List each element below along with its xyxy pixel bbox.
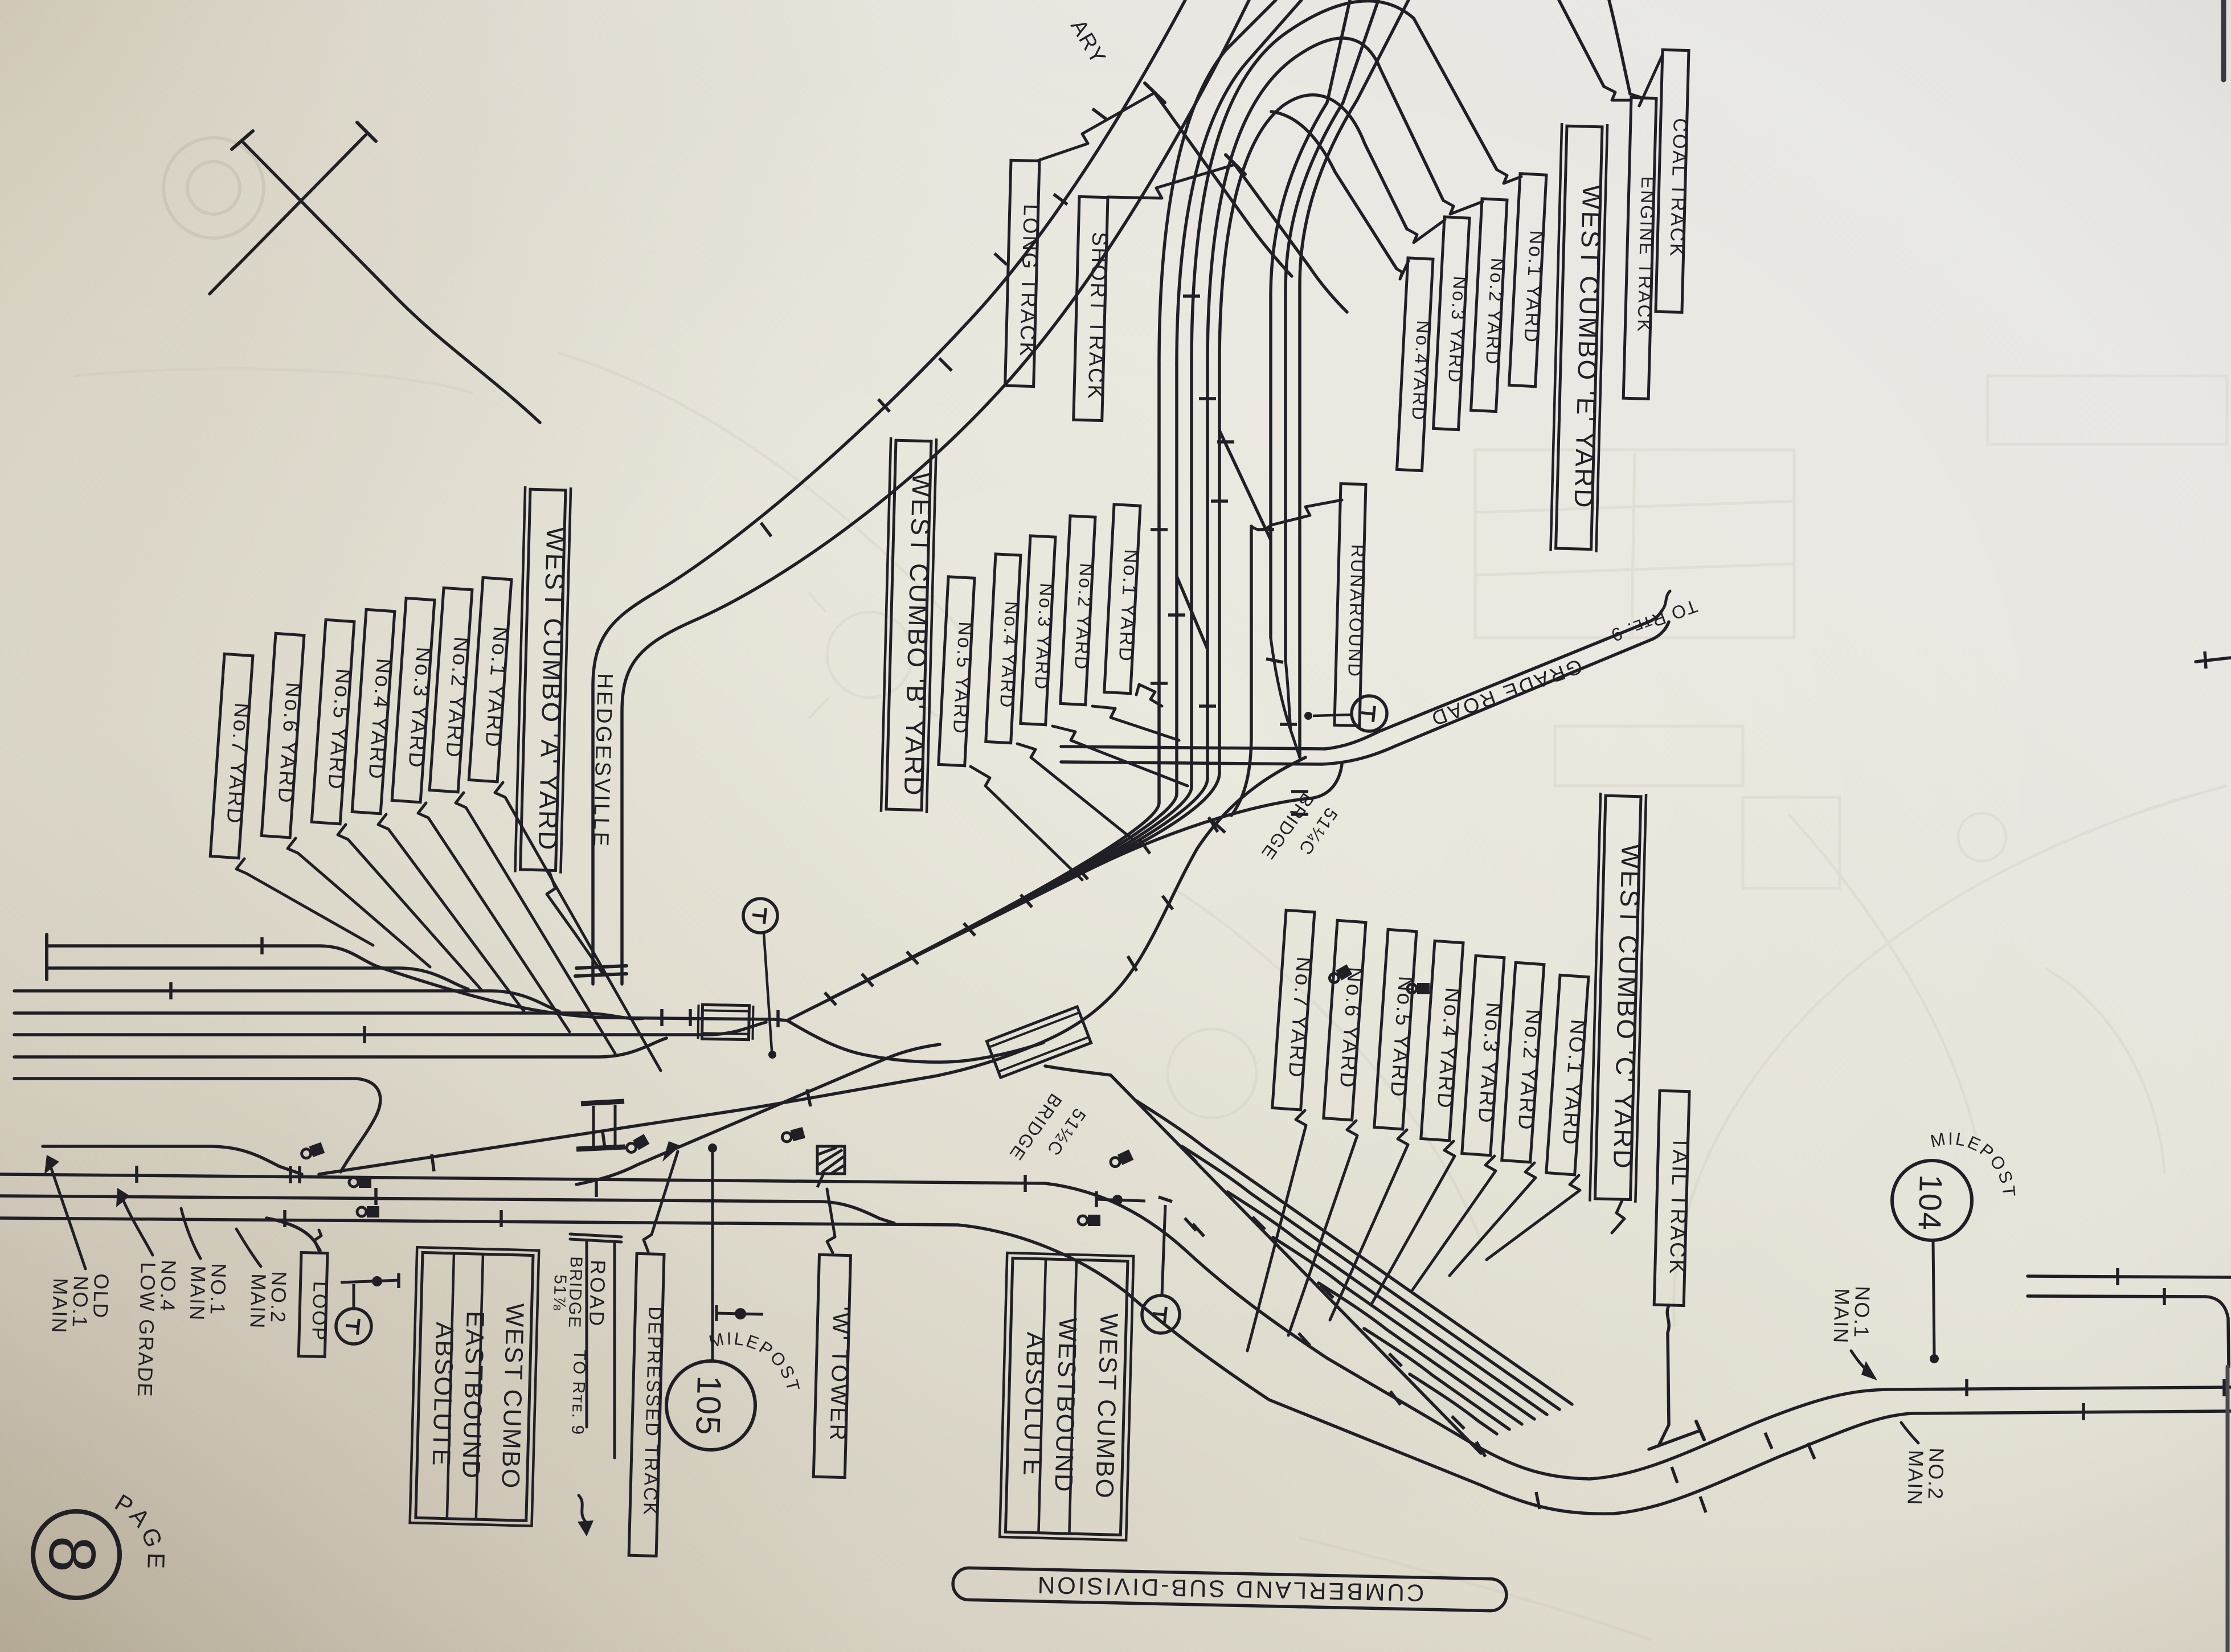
svg-text:EASTBOUND: EASTBOUND <box>457 1311 489 1481</box>
svg-text:LOW GRADE: LOW GRADE <box>133 1262 160 1398</box>
svg-text:8: 8 <box>35 1535 110 1573</box>
svg-text:ABSOLUTE: ABSOLUTE <box>427 1322 459 1467</box>
svg-text:TAIL TRACK: TAIL TRACK <box>1665 1136 1692 1276</box>
svg-text:51⅞: 51⅞ <box>550 1274 570 1311</box>
svg-text:MAIN: MAIN <box>1829 1288 1854 1344</box>
svg-text:WESTBOUND: WESTBOUND <box>1049 1317 1082 1494</box>
svg-text:MAIN: MAIN <box>47 1278 72 1334</box>
svg-text:MAIN: MAIN <box>185 1265 210 1322</box>
svg-text:HEDGESVILLE: HEDGESVILLE <box>588 673 617 849</box>
svg-text:LONG TRACK: LONG TRACK <box>1016 204 1043 358</box>
svg-text:104: 104 <box>1911 1174 1949 1232</box>
svg-text:MAIN: MAIN <box>1903 1450 1928 1506</box>
svg-text:ENGINE TRACK: ENGINE TRACK <box>1634 176 1658 333</box>
svg-text:105: 105 <box>689 1375 728 1437</box>
svg-text:COAL TRACK: COAL TRACK <box>1665 118 1690 258</box>
svg-text:SHORT TRACK: SHORT TRACK <box>1084 232 1112 401</box>
svg-text:LOOP: LOOP <box>308 1281 331 1342</box>
svg-text:TO Rᴛᴇ. 9: TO Rᴛᴇ. 9 <box>568 1350 589 1436</box>
svg-text:ROAD: ROAD <box>585 1260 610 1329</box>
svg-text:ABSOLUTE: ABSOLUTE <box>1018 1331 1050 1477</box>
svg-text:'W' TOWER: 'W' TOWER <box>825 1306 853 1442</box>
svg-text:MAIN: MAIN <box>245 1273 271 1330</box>
svg-text:RUNAROUND: RUNAROUND <box>1344 544 1368 678</box>
svg-text:WEST CUMBO: WEST CUMBO <box>496 1303 529 1490</box>
svg-text:WEST CUMBO: WEST CUMBO <box>1090 1313 1123 1499</box>
